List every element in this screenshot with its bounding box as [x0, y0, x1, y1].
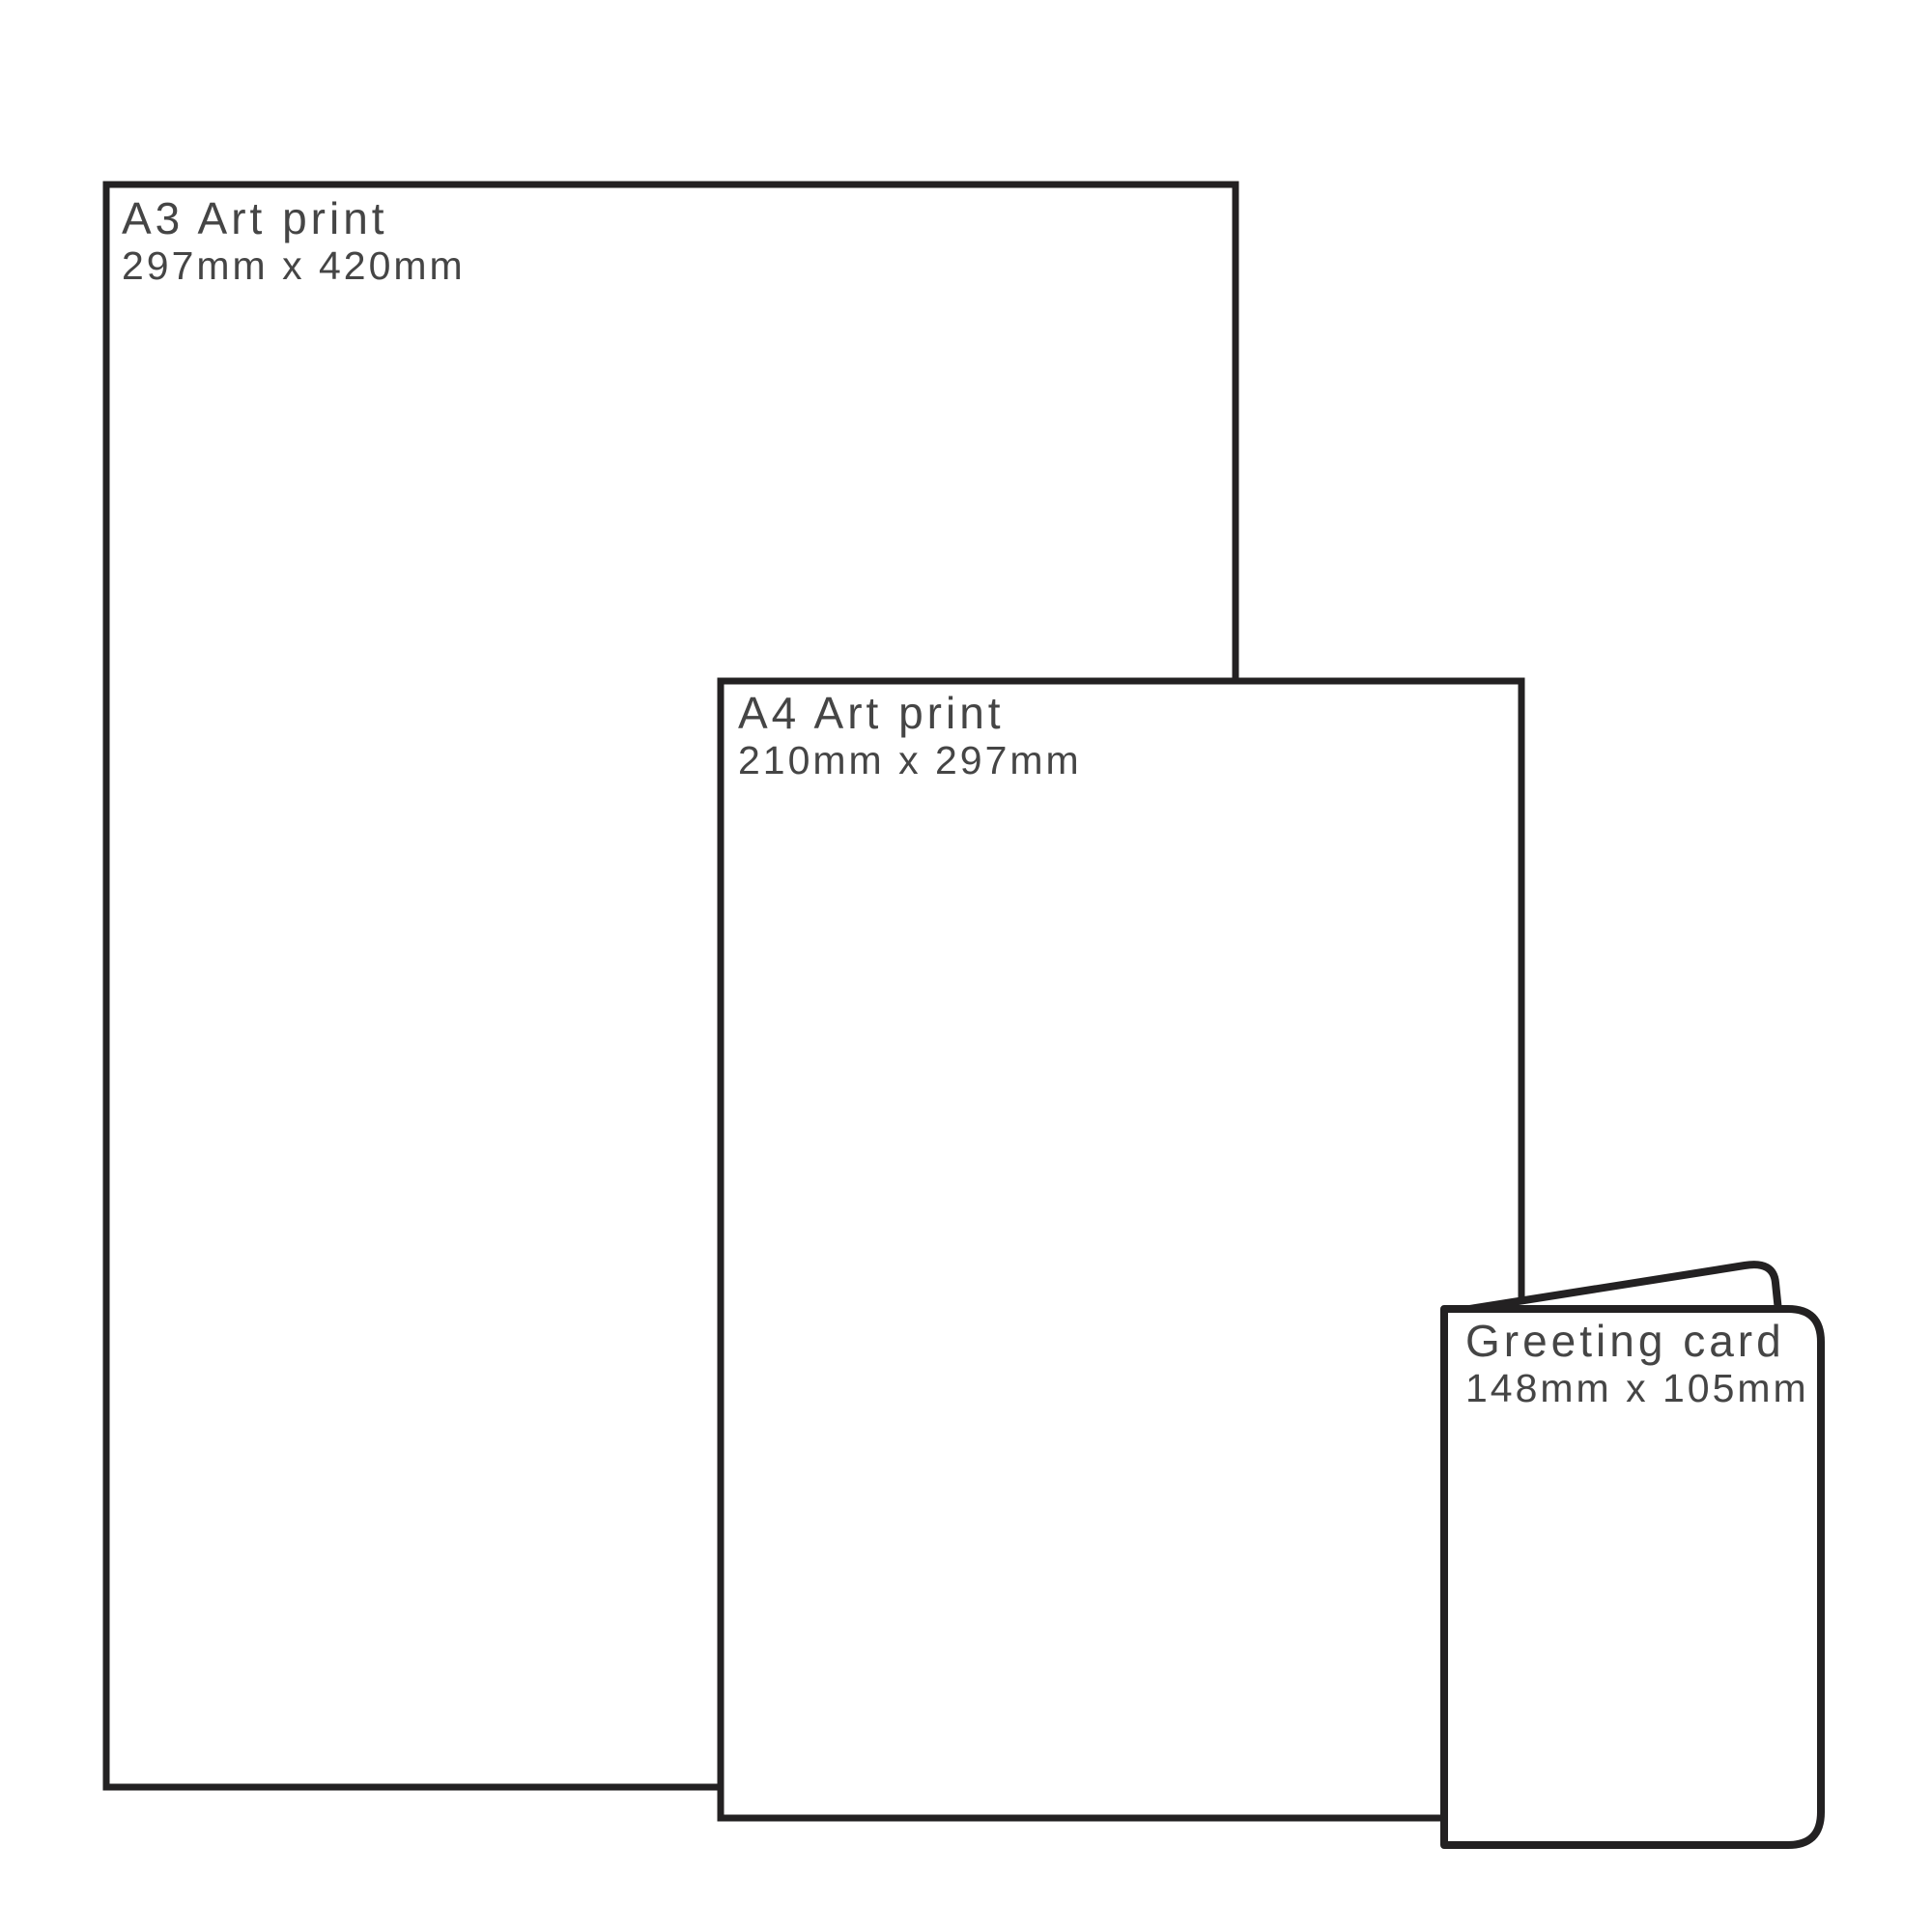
- size-comparison-shapes: [0, 0, 1932, 1932]
- size-comparison-diagram: A3 Art print 297mm x 420mm A4 Art print …: [0, 0, 1932, 1932]
- a4-print-outline: [721, 681, 1521, 1818]
- a4-print-title: A4 Art print: [738, 688, 1082, 738]
- greeting-card-dimensions: 148mm x 105mm: [1465, 1366, 1809, 1410]
- a3-print-title: A3 Art print: [122, 193, 466, 243]
- a4-print-label: A4 Art print 210mm x 297mm: [738, 688, 1082, 782]
- a3-print-label: A3 Art print 297mm x 420mm: [122, 193, 466, 288]
- a4-print-dimensions: 210mm x 297mm: [738, 738, 1082, 782]
- a3-print-dimensions: 297mm x 420mm: [122, 243, 466, 288]
- greeting-card-title: Greeting card: [1465, 1316, 1809, 1366]
- greeting-card-label: Greeting card 148mm x 105mm: [1465, 1316, 1809, 1410]
